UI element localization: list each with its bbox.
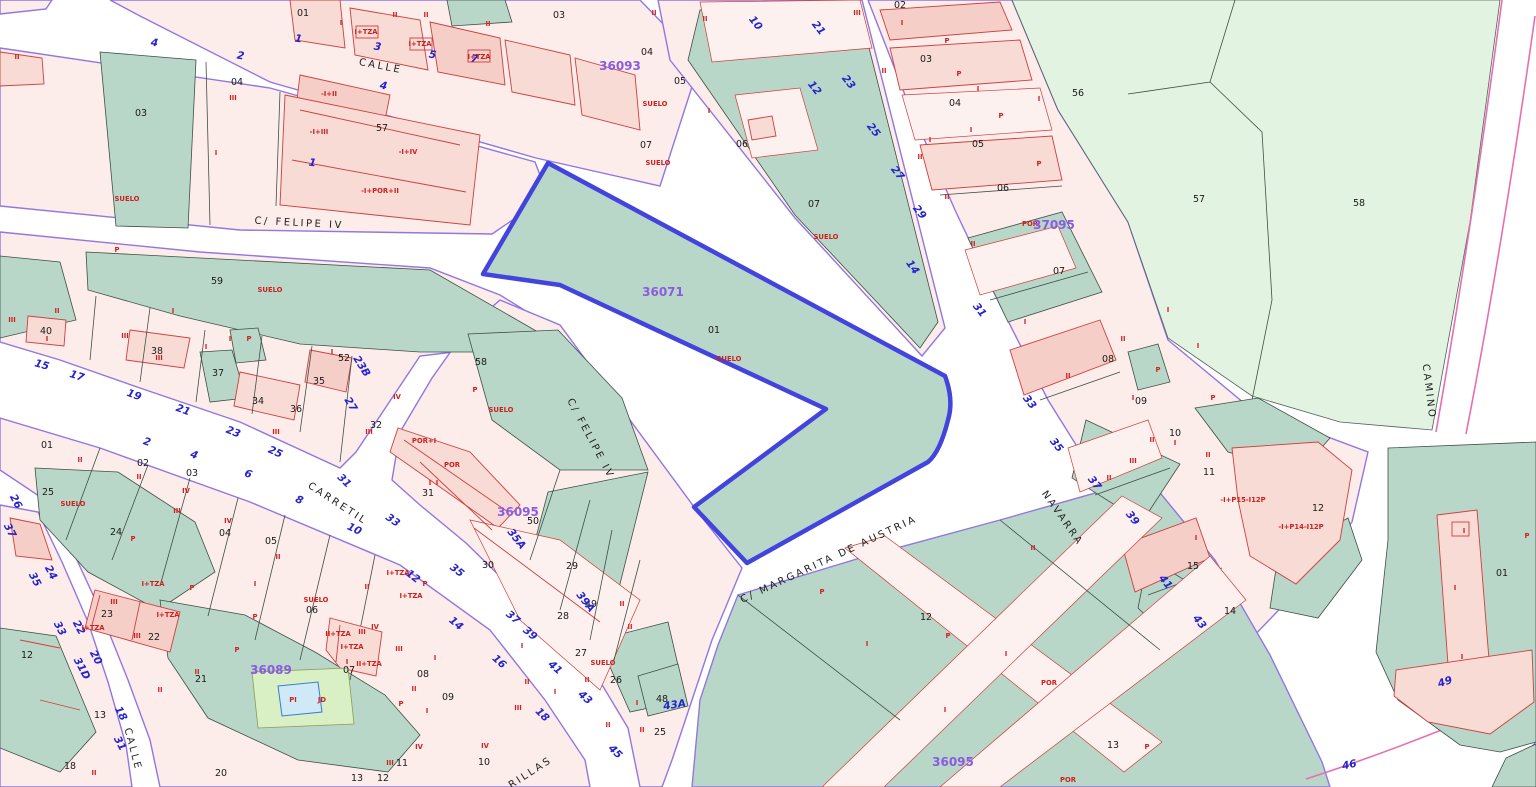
construction-label: III: [110, 598, 118, 606]
construction-label: III: [395, 645, 403, 653]
swimming-pool: [278, 682, 322, 716]
construction-label: I+TZA: [340, 643, 364, 651]
street-name: CARRETIL: [306, 481, 370, 528]
construction-label: III: [1129, 457, 1137, 465]
parcel-number: 04: [231, 77, 243, 88]
parcel-number: 57: [376, 123, 388, 134]
portal-number: 23: [224, 424, 242, 441]
construction-label: II: [1065, 372, 1070, 380]
construction-label: IV: [182, 487, 191, 495]
construction-label: I: [1038, 95, 1041, 103]
construction-label: P: [131, 535, 136, 543]
construction-label: II: [944, 193, 949, 201]
construction-label: II: [702, 15, 707, 23]
parcel-number: 13: [1107, 740, 1119, 751]
parcel-number: 06: [736, 139, 748, 150]
parcel-number: 29: [566, 561, 578, 572]
construction-label: SUELO: [304, 596, 329, 604]
construction-label: I: [46, 335, 49, 343]
construction-label: II: [970, 240, 975, 248]
parcel-number: 04: [641, 47, 653, 58]
parcel-number: 31: [422, 488, 434, 499]
parcel-number: 06: [997, 183, 1009, 194]
construction-label: II: [605, 721, 610, 729]
parcel-number: 25: [42, 487, 54, 498]
construction-label: P: [999, 112, 1004, 120]
construction-label: II: [157, 686, 162, 694]
parcel-teal-top[interactable]: [447, 0, 512, 26]
construction-label: III: [514, 704, 522, 712]
parcel-number: 06: [306, 605, 318, 616]
construction-label: II: [1106, 474, 1111, 482]
construction-label: II: [881, 67, 886, 75]
construction-label: II+TZA: [325, 630, 351, 638]
portal-number: 43: [575, 688, 595, 707]
construction-label: II: [1149, 436, 1154, 444]
cadastral-map-viewport[interactable]: CALLEC/ FELIPE IVC/ FELIPE IVCARRETILC/ …: [0, 0, 1536, 787]
parcel-number: 03: [186, 468, 198, 479]
construction-label: II: [917, 153, 922, 161]
parcel-number: 14: [1224, 606, 1236, 617]
parcel-number: 05: [265, 536, 277, 547]
construction-label: I+TZA: [399, 592, 423, 600]
parcel-number: 58: [1353, 198, 1365, 209]
portal-number: 31: [970, 301, 988, 320]
construction-label: PI: [289, 696, 297, 704]
construction-label: P: [115, 246, 120, 254]
construction-label: P: [1156, 366, 1161, 374]
parcel-number: 52: [338, 353, 350, 364]
parcel-number: 15: [1187, 561, 1199, 572]
parcel-number: 35: [313, 376, 325, 387]
construction-label: IV: [415, 743, 424, 751]
cadastral-map[interactable]: CALLEC/ FELIPE IVC/ FELIPE IVCARRETILC/ …: [0, 0, 1536, 787]
parcel-number: 57: [1193, 194, 1205, 205]
block-id: 36089: [250, 663, 292, 677]
construction-label: SUELO: [61, 500, 86, 508]
construction-label: I: [1132, 394, 1135, 402]
construction-label: II: [194, 668, 199, 676]
construction-label: POR: [1041, 679, 1058, 687]
parcel-number: 12: [21, 650, 33, 661]
portal-number: 2: [142, 435, 153, 449]
construction-label: I: [554, 688, 557, 696]
parcel-number: 22: [148, 632, 160, 643]
construction-label: I+TZA: [81, 624, 105, 632]
portal-number: 35: [447, 561, 466, 579]
construction-label: I: [436, 479, 439, 487]
construction-label: P: [1525, 532, 1530, 540]
parcel-sliver-top-left[interactable]: [0, 0, 52, 14]
construction-label: POR: [444, 461, 461, 469]
construction-label: I: [944, 706, 947, 714]
construction-label: II: [1120, 335, 1125, 343]
parcel-number: 09: [442, 692, 454, 703]
construction-label: I: [1463, 527, 1466, 535]
portal-number: 31: [335, 471, 354, 490]
construction-label: I: [254, 580, 257, 588]
construction-label: II: [639, 726, 644, 734]
parcel-number: 04: [219, 528, 231, 539]
construction-label: I: [970, 126, 973, 134]
construction-label: III: [358, 628, 366, 636]
construction-label: II: [584, 676, 589, 684]
block-id: 36093: [599, 59, 641, 73]
parcel-number: 20: [215, 768, 227, 779]
construction-label: III: [386, 759, 394, 767]
construction-label: P: [190, 584, 195, 592]
construction-label: -I+P14-I12P: [1278, 523, 1323, 531]
parcel-number: 18: [64, 761, 76, 772]
parcel-number: 11: [396, 758, 408, 769]
block-id: 36095: [932, 755, 974, 769]
construction-label: II: [14, 53, 19, 61]
construction-label: I: [521, 642, 524, 650]
parcel-number: 23: [101, 609, 113, 620]
parcel-number: 01: [41, 440, 53, 451]
construction-label: III: [229, 94, 237, 102]
construction-label: IV: [393, 393, 402, 401]
construction-label: III: [8, 316, 16, 324]
parcel-number: 58: [475, 357, 487, 368]
construction-label: I: [434, 654, 437, 662]
construction-label: II+TZA: [356, 660, 382, 668]
construction-label: POR+I: [412, 437, 436, 445]
construction-label: P: [957, 70, 962, 78]
construction-label: P: [423, 580, 428, 588]
construction-label: P: [945, 37, 950, 45]
construction-label: II: [485, 20, 490, 28]
construction-label: I: [929, 136, 932, 144]
construction-label: SUELO: [643, 100, 668, 108]
construction-label: I+TZA: [386, 569, 410, 577]
construction-label: I: [1197, 342, 1200, 350]
parcel-number: 11: [1203, 467, 1215, 478]
parcel-number: 12: [377, 773, 389, 784]
construction-label: III: [155, 354, 163, 362]
parcel-number: 12: [920, 612, 932, 623]
construction-label: II: [651, 9, 656, 17]
construction-label: -I+POR+II: [361, 187, 399, 195]
construction-label: SUELO: [814, 233, 839, 241]
parcel-number: 36: [290, 404, 302, 415]
parcel-number: 05: [674, 76, 686, 87]
parcel-number: 10: [1169, 428, 1181, 439]
parcel-number: 07: [640, 140, 652, 151]
portal-number: 4: [149, 36, 159, 49]
parcel-number: 03: [553, 10, 565, 21]
construction-label: II: [91, 769, 96, 777]
portal-number: 35: [1047, 436, 1065, 455]
portal-number: 4: [188, 448, 200, 462]
construction-label: P: [253, 613, 258, 621]
construction-label: II: [524, 678, 529, 686]
parcel-number: 01: [297, 8, 309, 19]
construction-label: I: [172, 307, 175, 315]
construction-label: -I+P15-I12P: [1220, 496, 1265, 504]
construction-label: -I+IV: [399, 148, 419, 156]
parcel-number: 30: [482, 560, 494, 571]
block-id: 36095: [497, 505, 539, 519]
construction-label: III: [121, 332, 129, 340]
construction-label: P: [820, 588, 825, 596]
construction-label: I+TZA: [408, 40, 432, 48]
parcel-number: 08: [417, 669, 429, 680]
construction-label: P: [235, 646, 240, 654]
portal-number: 33: [383, 511, 402, 529]
block-id: 36071: [642, 285, 684, 299]
parcel-number: 03: [135, 108, 147, 119]
construction-label: I: [426, 707, 429, 715]
parcel-number: 26: [610, 675, 622, 686]
construction-label: I: [1024, 318, 1027, 326]
portal-number: 25: [266, 444, 284, 461]
construction-label: II: [423, 11, 428, 19]
construction-label: III: [173, 507, 181, 515]
portal-number: 6: [242, 467, 253, 481]
parcel-number: 02: [137, 458, 149, 469]
construction-label: II: [364, 583, 369, 591]
construction-label: POR: [1060, 776, 1077, 784]
construction-label: P: [473, 386, 478, 394]
construction-label: I: [429, 479, 432, 487]
construction-label: IV: [224, 517, 233, 525]
parcel-number: 56: [1072, 88, 1084, 99]
construction-label: I: [215, 149, 218, 157]
parcel-number: 24: [110, 527, 122, 538]
construction-label: II: [275, 553, 280, 561]
parcel-number: 09: [1135, 396, 1147, 407]
construction-label: I: [1174, 439, 1177, 447]
construction-label: II: [392, 11, 397, 19]
parcel-number: 59: [211, 276, 223, 287]
portal-number: 33: [1020, 393, 1038, 412]
construction-label: SUELO: [591, 659, 616, 667]
construction-label: I+TZA: [156, 611, 180, 619]
construction-label: I: [1195, 534, 1198, 542]
construction-label: P: [247, 335, 252, 343]
portal-number: 41: [545, 658, 565, 677]
construction-label: SUELO: [717, 355, 742, 363]
construction-label: I: [1005, 650, 1008, 658]
construction-label: I: [340, 19, 343, 27]
construction-label: P: [1037, 160, 1042, 168]
construction-label: I: [205, 343, 208, 351]
construction-label: I+TZA: [141, 580, 165, 588]
parcel-number: 28: [557, 611, 569, 622]
construction-label: II: [1030, 544, 1035, 552]
parcel-number: 34: [252, 396, 264, 407]
construction-label: II: [136, 473, 141, 481]
construction-label: I+TZA: [467, 53, 491, 61]
portal-number: 19: [125, 387, 143, 403]
construction-label: III: [853, 9, 861, 17]
construction-label: I: [708, 107, 711, 115]
parcel-number: 07: [808, 199, 820, 210]
construction-label: I: [636, 699, 639, 707]
construction-label: JD: [317, 696, 327, 704]
construction-label: -I+III: [310, 128, 329, 136]
construction-label: II: [54, 307, 59, 315]
construction-label: I: [346, 658, 349, 666]
construction-label: II: [77, 456, 82, 464]
construction-label: II: [627, 623, 632, 631]
construction-label: IV: [371, 623, 380, 631]
parcel-number: 03: [920, 54, 932, 65]
parcel-number: 01: [1496, 568, 1508, 579]
construction-label: I: [1167, 306, 1170, 314]
block-id: 37095: [1033, 218, 1075, 232]
construction-label: II: [619, 600, 624, 608]
construction-label: II: [411, 685, 416, 693]
construction-label: P: [1145, 743, 1150, 751]
construction-label: P: [399, 700, 404, 708]
parcel-number: 02: [894, 0, 906, 11]
construction-label: I: [866, 640, 869, 648]
construction-label: I: [331, 348, 334, 356]
portal-number: 15: [33, 357, 50, 373]
construction-label: I: [229, 335, 232, 343]
construction-label: P: [946, 632, 951, 640]
construction-label: I+TZA: [354, 28, 378, 36]
construction-label: SUELO: [646, 159, 671, 167]
parcel-number: 01: [708, 325, 720, 336]
parcel-number: 37: [212, 368, 224, 379]
portal-number: 8: [293, 493, 305, 507]
construction-label: III: [365, 428, 373, 436]
portal-number: 46: [1340, 758, 1358, 773]
construction-label: I: [977, 85, 980, 93]
parcel-number: 13: [351, 773, 363, 784]
parcel-number: 12: [1312, 503, 1324, 514]
parcel-number: 04: [949, 98, 961, 109]
construction-label: P: [1211, 394, 1216, 402]
parcel-number: 07: [1053, 266, 1065, 277]
construction-label: III: [272, 428, 280, 436]
construction-label: I: [1461, 653, 1464, 661]
portal-number: 17: [68, 368, 86, 384]
construction-label: I: [901, 19, 904, 27]
construction-label: SUELO: [258, 286, 283, 294]
parcel-number: 08: [1102, 354, 1114, 365]
parcel-number: 27: [575, 648, 587, 659]
construction-label: I: [1454, 584, 1457, 592]
construction-label: IV: [481, 742, 490, 750]
parcel-number: 25: [654, 727, 666, 738]
parcel-number: 07: [343, 665, 355, 676]
parcel-number: 13: [94, 710, 106, 721]
construction-label: II: [1205, 451, 1210, 459]
construction-label: -I+II: [321, 90, 337, 98]
construction-label: SUELO: [489, 406, 514, 414]
parcel-number: 10: [478, 757, 490, 768]
construction-label: SUELO: [115, 195, 140, 203]
construction-label: III: [133, 632, 141, 640]
parcel-number: 05: [972, 139, 984, 150]
portal-number: 45: [605, 742, 625, 762]
